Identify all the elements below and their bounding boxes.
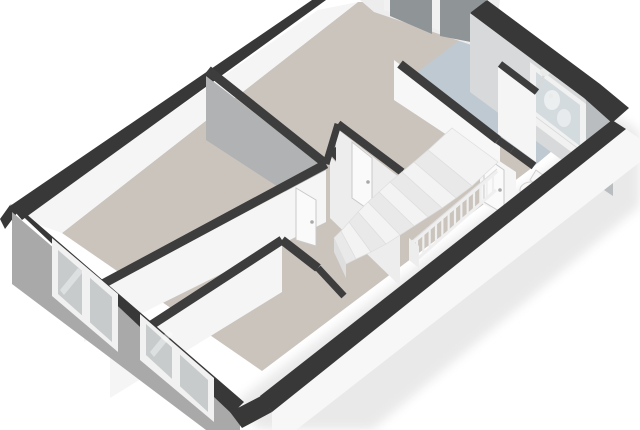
shower-knob-2	[549, 94, 553, 98]
door-landing-handle	[366, 180, 370, 184]
window-left-2-mullion	[172, 344, 180, 388]
floorplan-canvas[interactable]	[0, 0, 640, 430]
window-bath-frost-1	[544, 90, 560, 110]
floorplan-3d-render	[0, 0, 640, 430]
scene-root	[0, 0, 640, 430]
door-bathroom-handle	[498, 188, 502, 192]
window-left-1-mullion	[82, 268, 90, 323]
window-bath-frost-2	[557, 109, 571, 127]
door-bedroom-handle	[310, 220, 314, 224]
